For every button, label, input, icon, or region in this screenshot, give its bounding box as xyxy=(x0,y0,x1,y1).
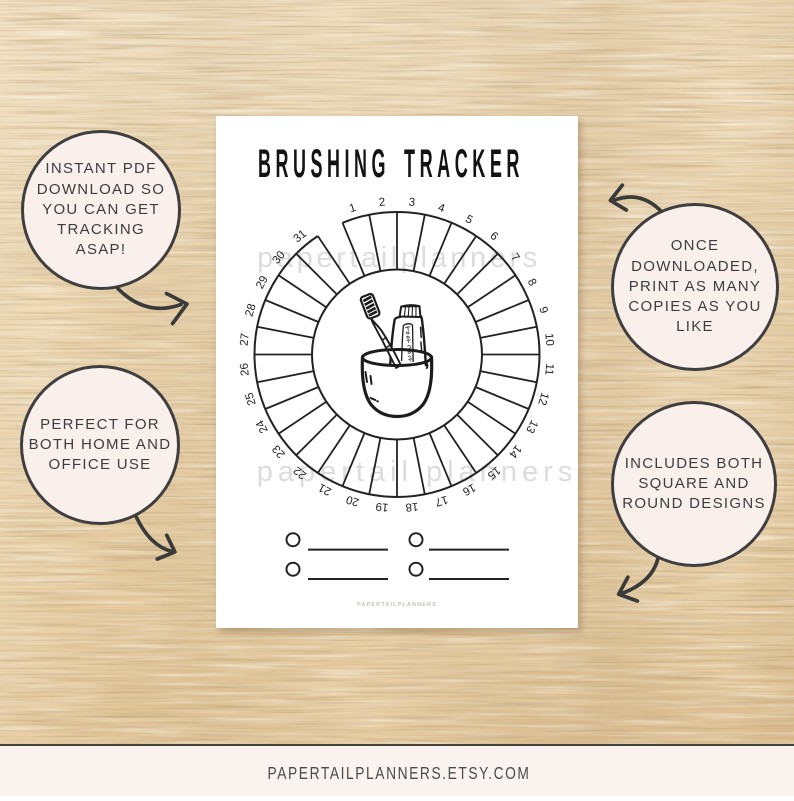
svg-text:PAPERTAILPLANNERS.ETSY.COM: PAPERTAILPLANNERS.ETSY.COM xyxy=(268,763,531,783)
